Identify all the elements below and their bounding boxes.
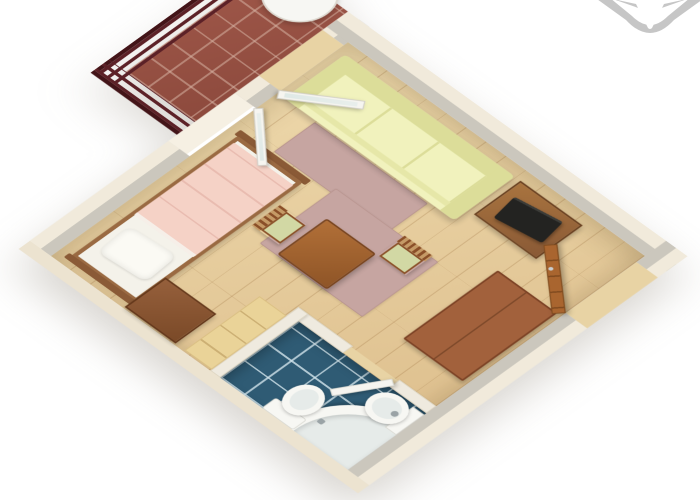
tv <box>493 197 563 243</box>
apartment-plan <box>51 42 645 470</box>
floorplan-stage <box>0 0 700 500</box>
door-handle-icon <box>548 267 553 271</box>
window-glass <box>257 113 264 161</box>
watermark-star-icon <box>588 0 700 64</box>
bidet-basin <box>366 393 408 424</box>
